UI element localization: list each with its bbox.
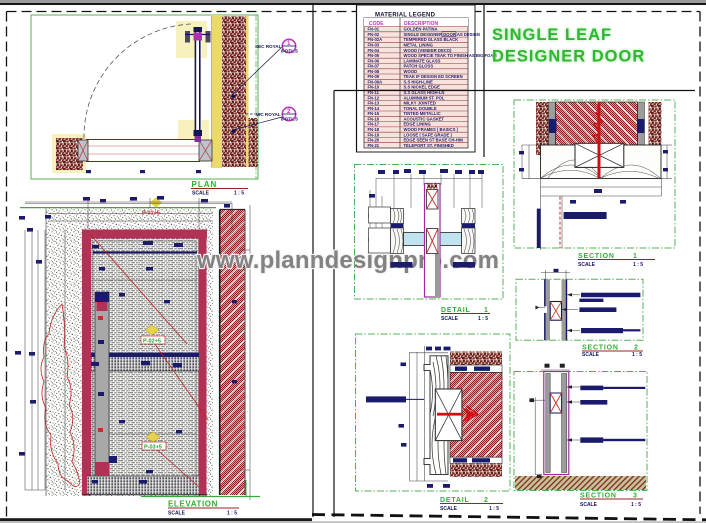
svg-text:P-02+5: P-02+5: [143, 339, 161, 345]
svg-text:SECTION: SECTION: [580, 493, 617, 500]
svg-text:SCALE: SCALE: [440, 506, 458, 512]
svg-text:DESIGNER DOOR: DESIGNER DOOR: [492, 48, 645, 66]
svg-text:www.planndesignpro.com: www.planndesignpro.com: [196, 247, 499, 274]
svg-text:FN-12: FN-12: [368, 95, 380, 100]
svg-text:FN-17: FN-17: [368, 122, 380, 127]
svg-text:1 : 5: 1 : 5: [633, 262, 643, 268]
svg-text:SCALE: SCALE: [441, 316, 459, 322]
svg-text:1 : 5: 1 : 5: [234, 191, 244, 197]
svg-text:1 : 5: 1 : 5: [227, 511, 237, 517]
svg-text:MILKY JOINTED: MILKY JOINTED: [404, 101, 436, 106]
svg-text:ALUMINIUM ST. POL: ALUMINIUM ST. POL: [404, 95, 445, 100]
svg-text:SCALE: SCALE: [168, 511, 186, 517]
svg-text:8-DTL.5: 8-DTL.5: [281, 117, 298, 122]
svg-text:METAL LINING: METAL LINING: [404, 43, 433, 48]
svg-text:SCALE: SCALE: [582, 352, 600, 358]
svg-text:SECTION: SECTION: [582, 345, 619, 352]
svg-text:1 : 5: 1 : 5: [632, 352, 642, 358]
svg-text:FN-21: FN-21: [368, 143, 380, 148]
svg-text:2: 2: [634, 345, 638, 352]
svg-text:FN-08: FN-08: [368, 69, 380, 74]
svg-text:PLAN: PLAN: [192, 180, 218, 189]
svg-text:WOOD: WOOD: [404, 69, 418, 74]
svg-text:3: 3: [633, 493, 637, 500]
svg-text:TEMPERED GLASS BLACK: TEMPERED GLASS BLACK: [404, 37, 459, 42]
svg-text:FN-19: FN-19: [368, 132, 380, 137]
svg-text:FN-03: FN-03: [368, 43, 380, 48]
svg-text:GOLDEN PATINA: GOLDEN PATINA: [404, 27, 438, 32]
svg-text:SCALE: SCALE: [578, 262, 596, 268]
svg-text:1 : 5: 1 : 5: [489, 506, 499, 512]
svg-text:SINGLE LEAF: SINGLE LEAF: [492, 26, 612, 44]
svg-text:FN-15: FN-15: [368, 111, 380, 116]
svg-text:WC ROYAL: WC ROYAL: [256, 112, 281, 117]
svg-text:ACOUSTIC GASKET: ACOUSTIC GASKET: [404, 116, 445, 121]
svg-text:1 : 5: 1 : 5: [631, 502, 641, 508]
svg-text:FN-09A: FN-09A: [368, 79, 383, 84]
svg-text:LAMINATE GLASS: LAMINATE GLASS: [404, 58, 441, 63]
svg-text:S.S HIGH-LINE: S.S HIGH-LINE: [404, 79, 434, 84]
svg-text:2: 2: [484, 497, 488, 504]
svg-text:SECTION: SECTION: [578, 253, 615, 260]
svg-text:SCALE: SCALE: [192, 191, 210, 197]
svg-text:EDGE LINING: EDGE LINING: [404, 122, 431, 127]
svg-text:FN-13: FN-13: [368, 101, 380, 106]
svg-text:FN-16: FN-16: [368, 116, 380, 121]
svg-text:WOOD FRAMES ( BASICS ): WOOD FRAMES ( BASICS ): [404, 127, 459, 132]
svg-text:DETAIL: DETAIL: [441, 307, 471, 314]
svg-text:FN-02: FN-02: [368, 32, 380, 37]
svg-text:FN-01: FN-01: [368, 27, 380, 32]
svg-text:1 : 5: 1 : 5: [478, 316, 488, 322]
svg-text:SCALE: SCALE: [580, 502, 598, 508]
svg-text:FN-05: FN-05: [368, 53, 380, 58]
svg-text:SINGLE DESIGNER DOOR AS DESIGN: SINGLE DESIGNER DOOR AS DESIGN: [404, 32, 480, 37]
svg-text:SEC ROYAL: SEC ROYAL: [255, 44, 282, 49]
svg-text:1: 1: [484, 307, 488, 314]
svg-text:TELEPORT ST. FINISHED: TELEPORT ST. FINISHED: [404, 143, 454, 148]
svg-text:FN-07: FN-07: [368, 64, 380, 69]
svg-text:8-DTL.5: 8-DTL.5: [281, 49, 298, 54]
svg-text:FN-06: FN-06: [368, 58, 380, 63]
svg-text:FN-10: FN-10: [368, 85, 380, 90]
svg-text:S.S NICKEL EDGE: S.S NICKEL EDGE: [404, 85, 441, 90]
svg-text:FN-18: FN-18: [368, 127, 380, 132]
svg-text:P-03+5: P-03+5: [144, 445, 162, 451]
svg-text:FN-02A: FN-02A: [368, 37, 383, 42]
svg-text:ELEVATION: ELEVATION: [168, 500, 218, 509]
svg-text:WOOD SPECIE TEAK TO FINISH AS: WOOD SPECIE TEAK TO FINISH AS BIG FOAM: [404, 53, 498, 58]
svg-text:TINTED METALLIC: TINTED METALLIC: [404, 111, 441, 116]
svg-text:LOOSE ( SAFE GRADE ): LOOSE ( SAFE GRADE ): [404, 132, 453, 137]
svg-text:DETAIL: DETAIL: [440, 497, 470, 504]
svg-text:PATCH GLOSS: PATCH GLOSS: [404, 64, 434, 69]
svg-text:1: 1: [633, 253, 637, 260]
